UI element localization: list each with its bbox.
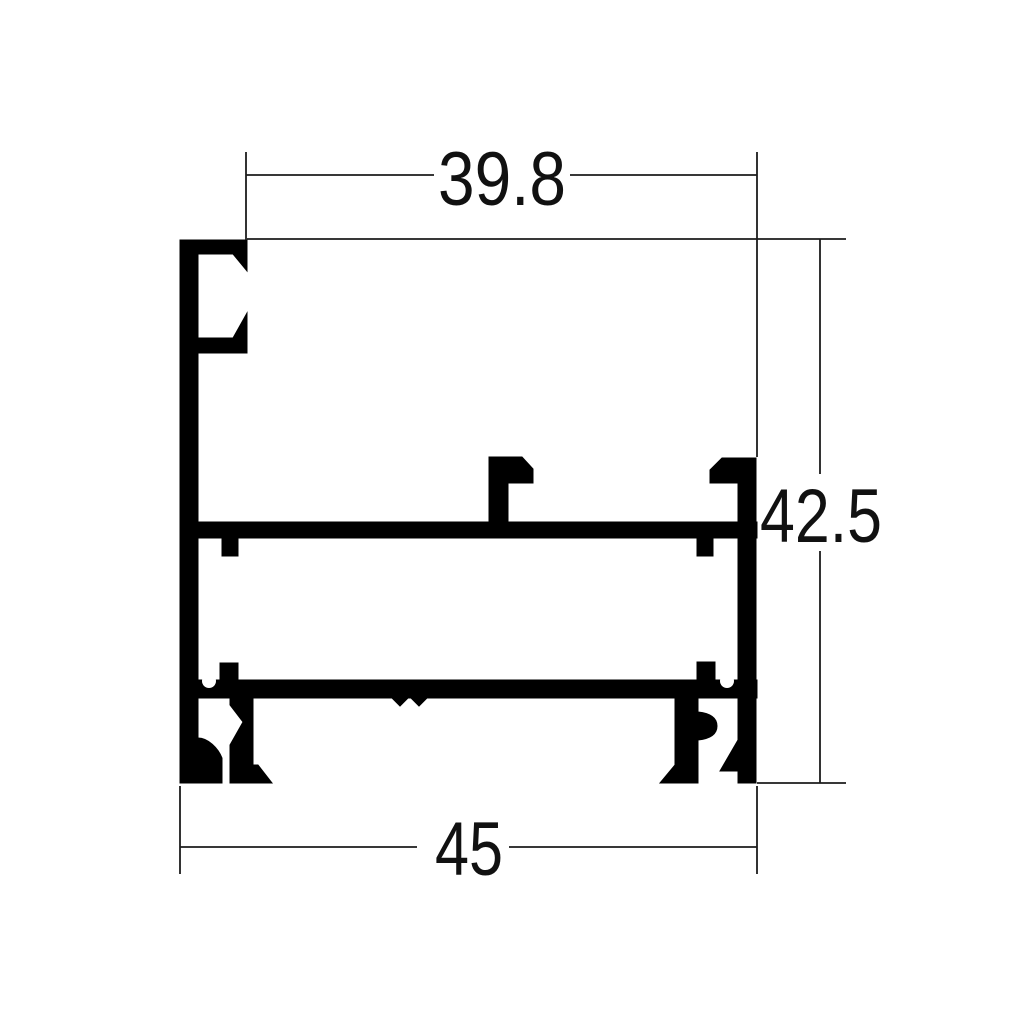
profile-top-flange [180, 240, 247, 254]
profile-bottom-plate [180, 680, 757, 698]
dimension-top-width: 39.8 [246, 137, 757, 457]
profile-left-wall [180, 240, 198, 783]
profile-serration-tooth-left [392, 698, 408, 706]
profile-center-hook [489, 457, 533, 522]
profile-right-plate-groove [720, 674, 734, 688]
profile-right-wall [710, 458, 756, 783]
profile-top-channel-upper-lip [233, 254, 247, 271]
profile-right-leg [660, 697, 717, 783]
profile-serration-tooth-right [411, 698, 427, 706]
profile-right-web-tab [697, 538, 713, 556]
extrusion-profile-drawing: 39.8 42.5 45 [0, 0, 1024, 1024]
profile-right-wall-barb [720, 740, 738, 771]
profile-top-channel-lower-lip [233, 313, 247, 338]
profile-left-plate-nub [220, 663, 238, 680]
drawing-canvas: 39.8 42.5 45 [0, 0, 1024, 1024]
dimension-label-top-width: 39.8 [438, 137, 566, 222]
dimension-bottom-width: 45 [180, 786, 757, 892]
dimension-label-bottom-width: 45 [435, 807, 503, 892]
dimension-label-height: 42.5 [760, 474, 882, 559]
profile-left-wall-bulge [198, 738, 222, 783]
profile-cross-section [180, 240, 757, 783]
dimension-height: 42.5 [247, 239, 882, 783]
profile-left-plate-groove [202, 674, 216, 688]
profile-left-web-tab [222, 538, 238, 556]
profile-left-leg [230, 697, 272, 783]
profile-right-plate-nub [697, 662, 715, 680]
profile-top-channel-lower-flange [180, 338, 247, 353]
profile-mid-web [180, 522, 757, 538]
